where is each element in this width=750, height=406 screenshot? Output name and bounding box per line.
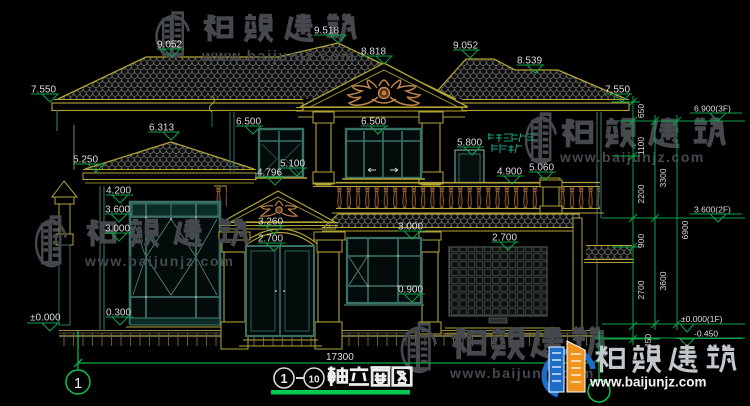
- svg-text:3300: 3300: [658, 168, 668, 187]
- svg-text:650: 650: [636, 104, 646, 118]
- svg-text:±0.000: ±0.000: [30, 313, 61, 324]
- svg-text:3.600(2F): 3.600(2F): [694, 205, 731, 215]
- svg-text:3600: 3600: [658, 271, 668, 290]
- svg-text:1: 1: [74, 375, 82, 392]
- svg-text:www.baijunjz.com: www.baijunjz.com: [201, 48, 355, 65]
- svg-text:1100: 1100: [636, 137, 646, 156]
- svg-text:6.900(3F): 6.900(3F): [694, 104, 731, 114]
- svg-text:2200: 2200: [636, 184, 646, 203]
- svg-text:17300: 17300: [326, 352, 354, 363]
- svg-text:www.baijunjz.com: www.baijunjz.com: [84, 253, 235, 269]
- svg-text:900: 900: [636, 234, 646, 248]
- svg-text:±0.000(1F): ±0.000(1F): [681, 314, 723, 324]
- svg-text:2700: 2700: [636, 280, 646, 299]
- svg-text:6900: 6900: [680, 220, 690, 239]
- svg-text:-0.450: -0.450: [694, 329, 718, 339]
- svg-text:www.baijunjz.com: www.baijunjz.com: [589, 375, 707, 390]
- svg-text:10: 10: [308, 375, 320, 386]
- svg-text:1: 1: [280, 371, 287, 386]
